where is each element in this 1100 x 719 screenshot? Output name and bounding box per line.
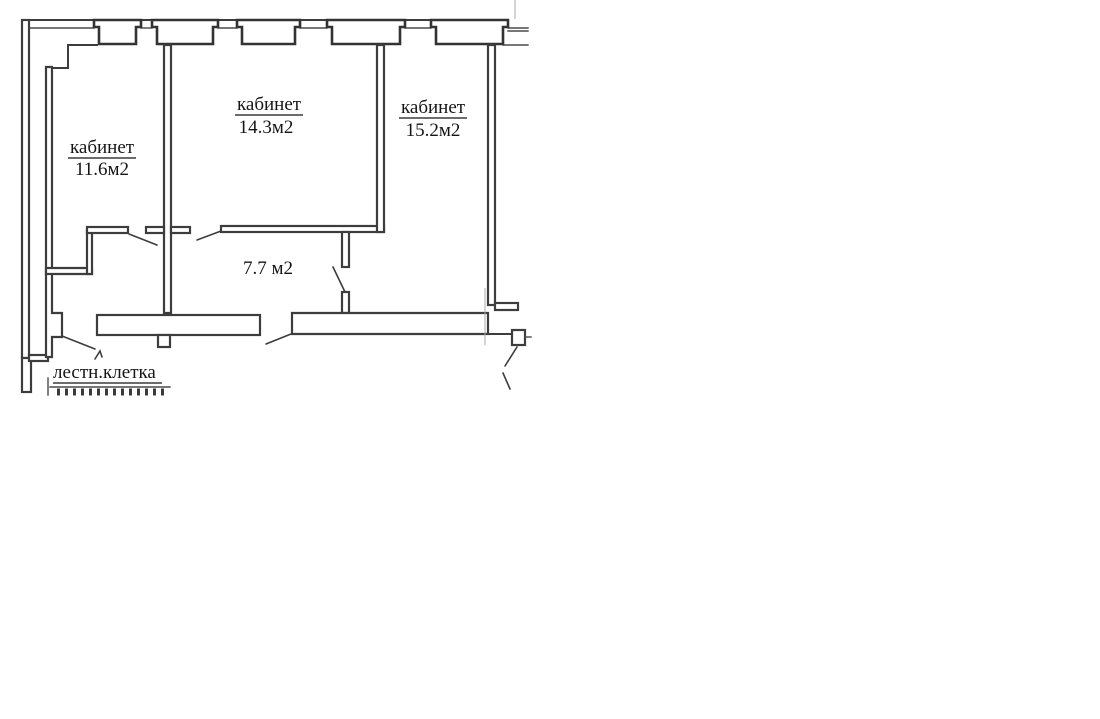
room3-entry-door-leaf xyxy=(333,267,345,292)
room3-entry-jamb-upper xyxy=(342,232,349,267)
room1-name-label: кабинет xyxy=(70,137,135,158)
room2-name-label: кабинет xyxy=(237,94,302,115)
top-exterior-wall xyxy=(22,0,528,45)
room3-area-label: 15.2м2 xyxy=(406,120,461,141)
bottom-wall-tab xyxy=(158,335,170,347)
floor-plan: кабинет 11.6м2 кабинет 14.3м2 кабинет 15… xyxy=(0,0,1100,719)
room1-door-jamb-wall xyxy=(87,227,128,233)
room1-left-interior-wall xyxy=(46,67,62,357)
door-leaf-cut-1 xyxy=(505,347,517,366)
room3-name-label: кабинет xyxy=(401,97,466,118)
room2-area-label: 14.3м2 xyxy=(239,117,294,138)
room1-door-leaf xyxy=(129,234,157,245)
left-wall-upper xyxy=(22,20,29,358)
door-block xyxy=(512,330,525,345)
left-wall-lower xyxy=(22,358,31,392)
room1-step-corner xyxy=(52,45,97,68)
room1-area-label: 11.6м2 xyxy=(75,159,129,180)
room3-entry-jamb-lower xyxy=(342,292,349,313)
room1-bottom-wall-left xyxy=(46,268,92,274)
staircase-door-arrow xyxy=(95,351,102,359)
corridor-door-leaf xyxy=(266,334,291,344)
bottom-right-door xyxy=(503,330,531,389)
room2-door-leaf xyxy=(197,231,221,240)
window-pier-2 xyxy=(152,20,218,44)
staircase-label: лестн.клетка xyxy=(53,362,156,383)
left-exterior-wall xyxy=(22,20,48,392)
door-leaf-cut-2 xyxy=(503,373,510,389)
window-pier-3 xyxy=(237,20,300,44)
scanned-floor-plan-page: кабинет 11.6м2 кабинет 14.3м2 кабинет 15… xyxy=(0,0,1100,719)
room-labels: кабинет 11.6м2 кабинет 14.3м2 кабинет 15… xyxy=(53,94,467,383)
partition-stub-right xyxy=(171,227,190,233)
window-sill-6-cut xyxy=(508,28,528,31)
divider-room2-room3 xyxy=(377,45,384,232)
room3-right-wall-stub xyxy=(495,303,518,310)
staircase-door-leaf xyxy=(62,336,95,349)
window-pier-1 xyxy=(94,20,141,44)
partition-room1-room2 xyxy=(146,45,221,313)
room-kabinet-15-2 xyxy=(333,45,518,313)
room1-step-wall xyxy=(87,230,92,274)
corridor-area-label: 7.7 м2 xyxy=(243,258,293,279)
bottom-wall-left-bar xyxy=(97,315,260,335)
corridor-bottom-walls xyxy=(97,288,518,347)
room-kabinet-14-3 xyxy=(221,45,384,232)
room2-bottom-wall xyxy=(221,226,384,232)
room3-right-wall xyxy=(488,45,495,305)
partition-wall xyxy=(164,45,171,313)
window-pier-4 xyxy=(327,20,405,44)
window-pier-5 xyxy=(431,20,508,44)
bottom-wall-right-bar xyxy=(292,313,488,334)
room-kabinet-11-6 xyxy=(46,45,157,357)
partition-stub-left xyxy=(146,227,164,233)
